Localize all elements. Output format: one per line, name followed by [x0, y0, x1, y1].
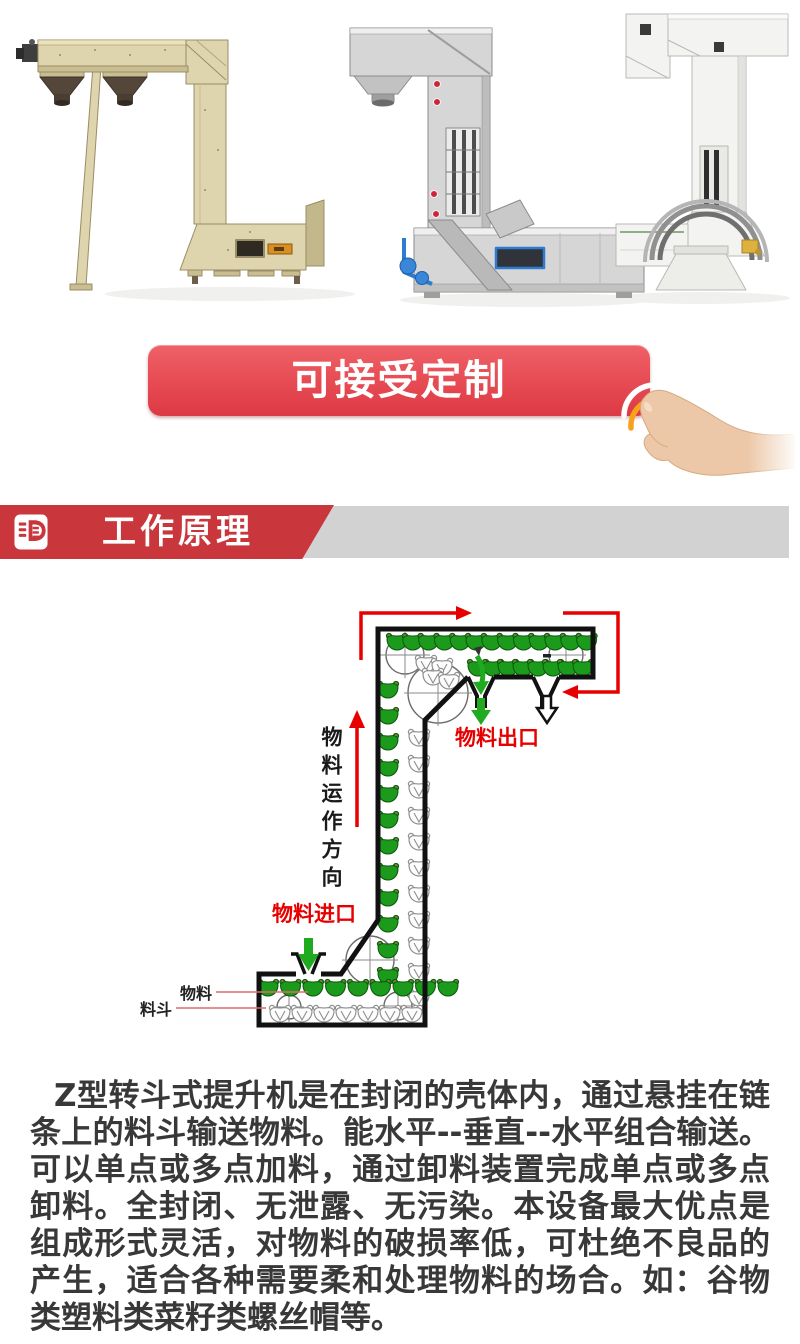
hand-shape — [640, 390, 794, 475]
direction-label: 物料运作方向 — [320, 726, 346, 941]
bucket-label: 料斗 — [140, 1000, 172, 1019]
product-photos — [0, 0, 800, 335]
customize-button-label: 可接受定制 — [292, 356, 507, 404]
product-photo-white-elevator — [616, 14, 788, 290]
section-title: 工作原理 — [102, 505, 254, 559]
product-photo-stainless-elevator — [350, 28, 644, 298]
material-label: 物料 — [180, 984, 212, 1003]
working-principle-diagram: 物料出口 物料进口 物料 料斗 物料运作方向 — [0, 590, 800, 1078]
section-banner: 工作原理 — [0, 505, 800, 559]
outlet-label: 物料出口 — [455, 726, 539, 750]
brand-logo-icon — [14, 513, 48, 551]
product-description: Z型转斗式提升机是在封闭的壳体内，通过悬挂在链条上的料斗输送物料。能水平--垂直… — [30, 1078, 770, 1337]
customize-button[interactable]: 可接受定制 — [148, 345, 650, 416]
product-photo-beige-elevator — [16, 39, 324, 290]
description-text: Z型转斗式提升机是在封闭的壳体内，通过悬挂在链条上的料斗输送物料。能水平--垂直… — [30, 1078, 770, 1337]
